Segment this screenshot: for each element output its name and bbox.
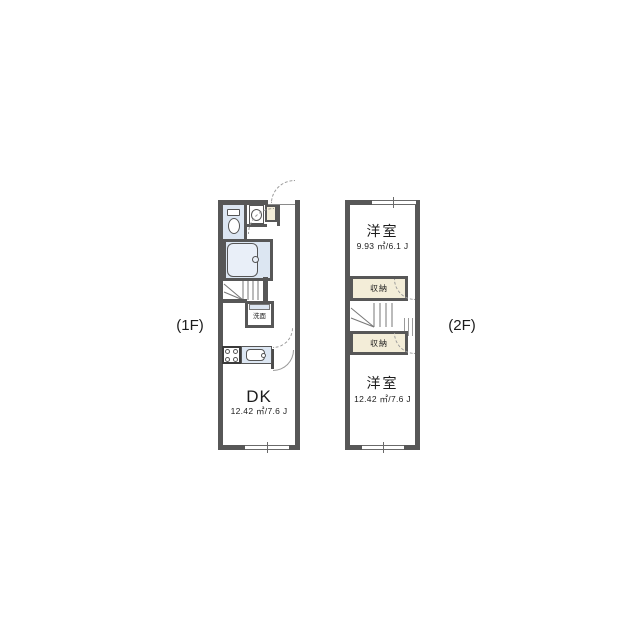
floor-label-1f-text: (1F) bbox=[176, 317, 204, 334]
entrance-door-arc bbox=[271, 180, 295, 203]
closet-bottom-name: 収納 bbox=[370, 338, 388, 349]
stove-burner-3 bbox=[225, 357, 230, 362]
washroom-name: 洗面 bbox=[253, 313, 266, 320]
floor-label-2f-text: (2F) bbox=[448, 317, 476, 334]
toilet-fixture-tank bbox=[227, 209, 240, 216]
bedroom-top-area: 9.93 ㎡/6.1 J bbox=[350, 242, 415, 251]
window-2f-bottom-tick bbox=[383, 442, 384, 453]
stair-bottom-wall bbox=[223, 299, 247, 303]
window-2f-top-tick bbox=[393, 197, 394, 208]
wall-right-of-cabinet bbox=[277, 205, 280, 226]
bedroom-bottom-label: 洋室 12.42 ㎡/7.6 J bbox=[350, 376, 415, 405]
stove-burner-4 bbox=[233, 357, 238, 362]
kitchen-faucet bbox=[261, 353, 266, 358]
stove-burner-1 bbox=[225, 349, 230, 354]
toilet-fixture bbox=[228, 218, 240, 234]
bedroom-top-label: 洋室 9.93 ㎡/6.1 J bbox=[350, 224, 415, 252]
bedroom-bottom-name: 洋室 bbox=[350, 376, 415, 391]
dk-room-label: DK 12.42 ㎡/7.6 J bbox=[223, 388, 295, 416]
floor-plan-canvas: 洗面 DK 12.42 ㎡/7.6 J (1F) 洋室 9.93 ㎡/6.1 J… bbox=[0, 0, 640, 640]
window-2f-top bbox=[372, 200, 416, 205]
bedroom-bottom-area: 12.42 ㎡/7.6 J bbox=[350, 395, 415, 404]
stove-burner-2 bbox=[233, 349, 238, 354]
staircase-2f bbox=[350, 303, 396, 329]
washstand-label: 洗面 bbox=[245, 313, 274, 320]
washstand-fixture bbox=[249, 304, 270, 310]
floor-label-1f: (1F) bbox=[168, 317, 212, 334]
dk-area: 12.42 ㎡/7.6 J bbox=[223, 407, 295, 416]
window-1f-bottom-tick bbox=[267, 442, 268, 453]
bath-faucet bbox=[252, 256, 259, 263]
staircase-1f bbox=[223, 281, 263, 301]
dk-name: DK bbox=[223, 388, 295, 407]
stair-right-wall bbox=[263, 277, 268, 302]
bedroom-top-name: 洋室 bbox=[350, 224, 415, 239]
floor-label-2f: (2F) bbox=[440, 317, 484, 334]
closet-top-name: 収納 bbox=[370, 283, 388, 294]
